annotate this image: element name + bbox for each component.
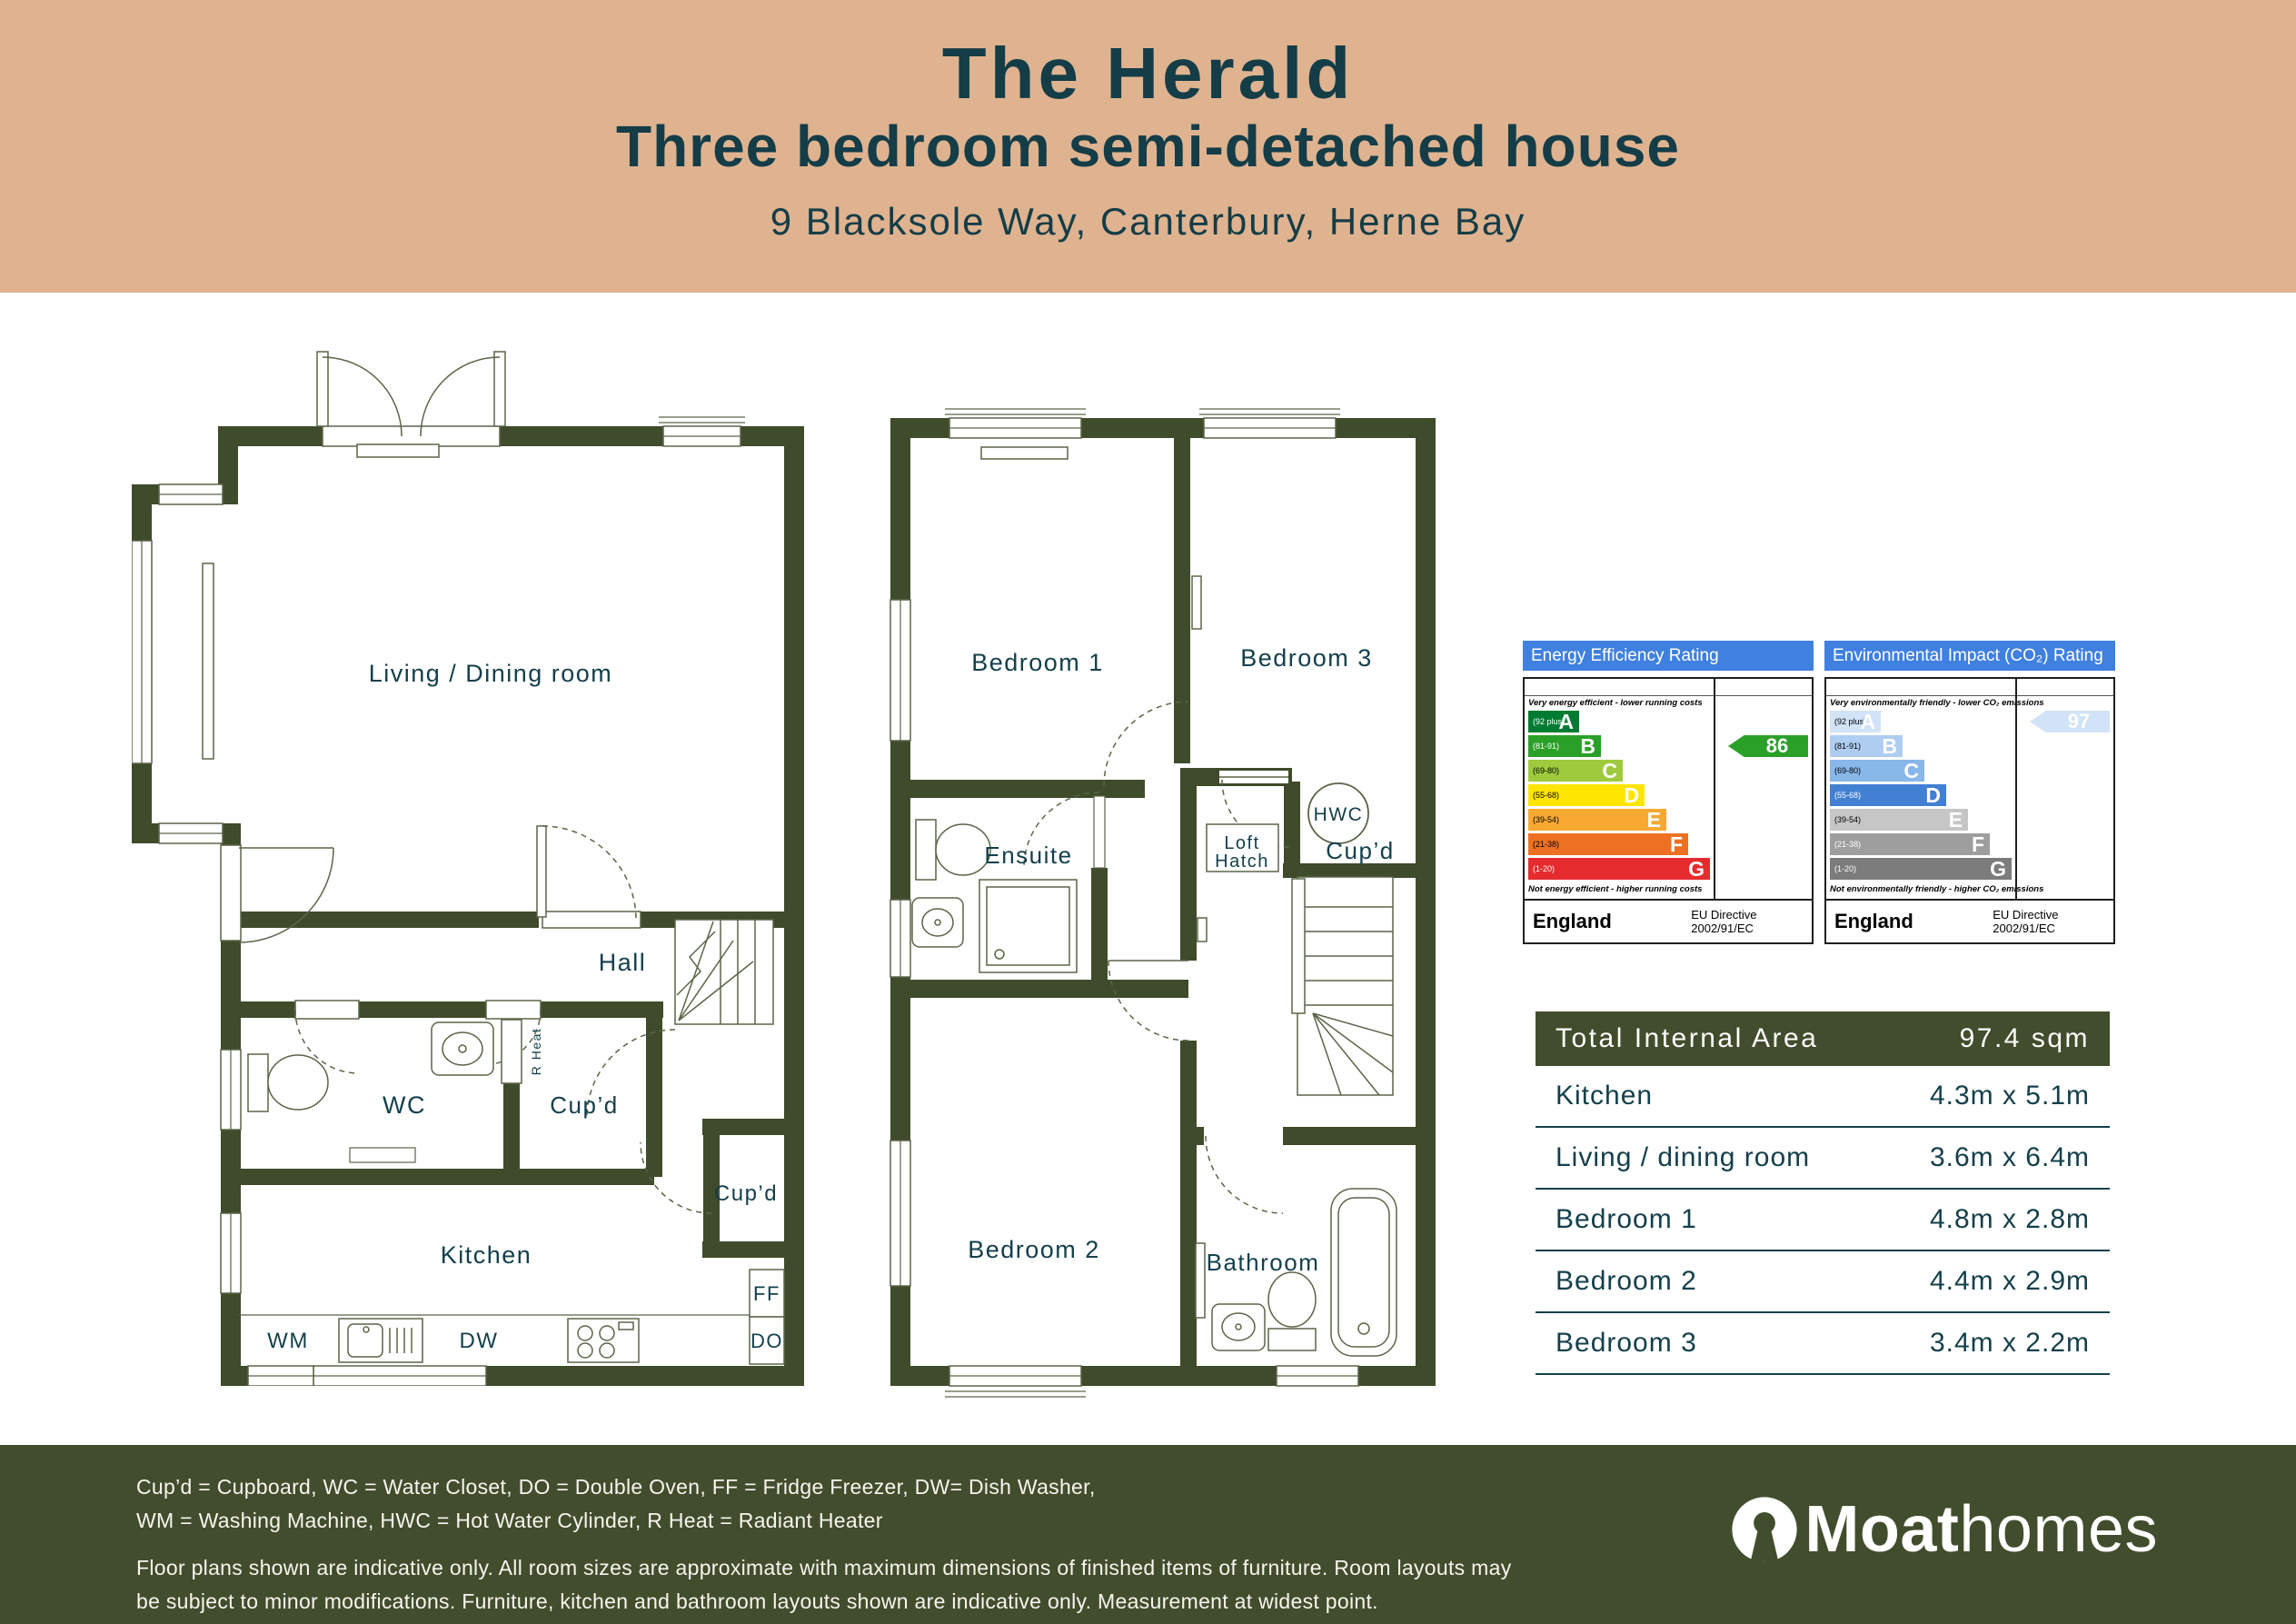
epc-band-letter: G bbox=[1990, 858, 2006, 880]
epc-energy-bands: (92 plus)A(81-91)B86(69-80)C(55-68)D(39-… bbox=[1525, 709, 1812, 882]
epc-environmental-title: Environmental Impact (CO₂) Rating bbox=[1824, 641, 2115, 671]
bath-icon bbox=[1331, 1189, 1396, 1356]
property-address: 9 Blacksole Way, Canterbury, Herne Bay bbox=[0, 200, 2296, 244]
label-r-heat: R Heat bbox=[529, 1028, 543, 1076]
epc-band-letter: D bbox=[1925, 784, 1941, 806]
wc-sink-icon bbox=[432, 1022, 493, 1075]
table-row: Living / dining room3.6m x 6.4m bbox=[1536, 1128, 2110, 1190]
epc-top-strip bbox=[1525, 679, 1812, 696]
epc-band-row: (21-38)F bbox=[1528, 833, 1812, 858]
epc-band-row: (39-54)E bbox=[1528, 809, 1812, 833]
epc-band-B: (81-91)B bbox=[1830, 735, 1903, 757]
label-do: DO bbox=[750, 1330, 783, 1352]
epc-band-letter: A bbox=[1558, 711, 1574, 732]
room-label-cupboard2: Cup’d bbox=[714, 1181, 778, 1206]
epc-environmental-bands: (92 plus)A97(81-91)B(69-80)C(55-68)D(39-… bbox=[1826, 709, 2113, 882]
epc-band-D: (55-68)D bbox=[1830, 784, 1946, 806]
room-label-ensuite: Ensuite bbox=[984, 842, 1072, 869]
room-size: 3.6m x 6.4m bbox=[1930, 1142, 2090, 1173]
label-loft-line1: Loft bbox=[1224, 833, 1259, 853]
dimensions-table: Total Internal Area 97.4 sqm Kitchen4.3m… bbox=[1536, 1011, 2110, 1375]
epc-note-top: Very energy efficient - lower running co… bbox=[1525, 696, 1812, 709]
epc-country: England bbox=[1834, 910, 1913, 933]
epc-directive-line2: 2002/91/EC bbox=[1993, 922, 2058, 935]
first-floor-plan: Bedroom 1 Bedroom 3 Ensuite HWC Loft Hat… bbox=[872, 400, 1454, 1400]
epc-band-range: (55-68) bbox=[1528, 791, 1559, 800]
epc-band-range: (39-54) bbox=[1528, 815, 1559, 824]
epc-rating-arrow: 97 bbox=[2030, 711, 2110, 732]
epc-band-row: (39-54)E bbox=[1830, 809, 2113, 833]
disclaimer-line2: be subject to minor modifications. Furni… bbox=[136, 1585, 1512, 1619]
room-size: 4.3m x 5.1m bbox=[1930, 1081, 2090, 1111]
ensuite-toilet-icon bbox=[916, 820, 990, 880]
epc-column-divider bbox=[2015, 679, 2017, 899]
epc-band-range: (81-91) bbox=[1830, 742, 1861, 751]
epc-band-row: (1-20)G bbox=[1830, 858, 2113, 882]
epc-band-row: (81-91)B86 bbox=[1528, 735, 1812, 760]
epc-note-bottom: Not environmentally friendly - higher CO… bbox=[1826, 882, 2113, 895]
epc-directive: EU Directive 2002/91/EC bbox=[1691, 908, 1756, 935]
ensuite-sink-icon bbox=[912, 898, 963, 947]
epc-band-row: (69-80)C bbox=[1528, 760, 1812, 784]
epc-rating-arrow: 86 bbox=[1728, 735, 1808, 757]
legend-line1: Cup’d = Cupboard, WC = Water Closet, DO … bbox=[136, 1470, 1512, 1504]
label-wm: WM bbox=[267, 1329, 309, 1353]
epc-band-letter: E bbox=[1949, 809, 1963, 831]
table-row: Bedroom 33.4m x 2.2m bbox=[1536, 1313, 2110, 1375]
epc-energy-footer: England EU Directive 2002/91/EC bbox=[1523, 901, 1814, 944]
epc-band-letter: B bbox=[1882, 735, 1897, 757]
epc-band-row: (21-38)F bbox=[1830, 833, 2113, 858]
epc-band-letter: A bbox=[1860, 711, 1875, 732]
room-label-bedroom1: Bedroom 1 bbox=[971, 649, 1104, 676]
epc-band-range: (21-38) bbox=[1830, 840, 1861, 849]
epc-band-G: (1-20)G bbox=[1528, 858, 1710, 880]
page-title: The Herald bbox=[0, 0, 2296, 113]
epc-band-E: (39-54)E bbox=[1830, 809, 1968, 831]
table-row: Kitchen4.3m x 5.1m bbox=[1536, 1066, 2110, 1128]
epc-band-letter: B bbox=[1580, 735, 1595, 757]
epc-directive-line1: EU Directive bbox=[1691, 908, 1756, 922]
room-label-bedroom3: Bedroom 3 bbox=[1240, 644, 1373, 672]
epc-band-C: (69-80)C bbox=[1830, 760, 1924, 782]
room-name: Bedroom 1 bbox=[1556, 1204, 1697, 1235]
epc-band-range: (39-54) bbox=[1830, 815, 1861, 824]
wc-toilet-icon bbox=[248, 1054, 328, 1111]
epc-band-F: (21-38)F bbox=[1830, 833, 1990, 855]
epc-band-range: (55-68) bbox=[1830, 791, 1861, 800]
epc-country: England bbox=[1533, 910, 1612, 933]
moat-homes-logo: Moathomes bbox=[1730, 1492, 2158, 1567]
epc-band-letter: G bbox=[1688, 858, 1705, 880]
keyhole-icon bbox=[1730, 1495, 1799, 1564]
epc-band-E: (39-54)E bbox=[1528, 809, 1666, 831]
epc-note-bottom: Not energy efficient - higher running co… bbox=[1525, 882, 1812, 895]
dimensions-table-header: Total Internal Area 97.4 sqm bbox=[1536, 1011, 2110, 1066]
epc-band-C: (69-80)C bbox=[1528, 760, 1623, 782]
dimensions-table-rows: Kitchen4.3m x 5.1mLiving / dining room3.… bbox=[1536, 1066, 2110, 1375]
epc-note-top: Very environmentally friendly - lower CO… bbox=[1826, 696, 2113, 709]
label-dw: DW bbox=[460, 1329, 499, 1353]
shower-icon bbox=[979, 880, 1077, 972]
epc-energy-body: Very energy efficient - lower running co… bbox=[1523, 677, 1814, 901]
footer-bar: Cup’d = Cupboard, WC = Water Closet, DO … bbox=[0, 1445, 2296, 1624]
room-size: 3.4m x 2.2m bbox=[1930, 1328, 2090, 1359]
epc-band-letter: C bbox=[1903, 760, 1919, 782]
disclaimer-line1: Floor plans shown are indicative only. A… bbox=[136, 1551, 1512, 1585]
room-size: 4.8m x 2.8m bbox=[1930, 1204, 2090, 1235]
staircase-ground bbox=[675, 920, 773, 1024]
room-label-cupboard-first: Cup’d bbox=[1326, 837, 1394, 864]
legend-line2: WM = Washing Machine, HWC = Hot Water Cy… bbox=[136, 1504, 1512, 1538]
room-label-kitchen: Kitchen bbox=[441, 1241, 532, 1269]
epc-energy-title: Energy Efficiency Rating bbox=[1523, 641, 1814, 671]
epc-band-letter: E bbox=[1647, 809, 1661, 831]
epc-top-strip bbox=[1826, 679, 2113, 696]
epc-band-row: (55-68)D bbox=[1528, 784, 1812, 809]
room-label-wc: WC bbox=[383, 1091, 426, 1119]
epc-directive-line1: EU Directive bbox=[1993, 908, 2058, 922]
label-hwc: HWC bbox=[1314, 804, 1364, 825]
room-name: Bedroom 3 bbox=[1556, 1328, 1697, 1359]
page-subtitle: Three bedroom semi-detached house bbox=[0, 113, 2296, 180]
epc-band-row: (81-91)B bbox=[1830, 735, 2113, 760]
room-label-hall: Hall bbox=[599, 949, 647, 976]
room-size: 4.4m x 2.9m bbox=[1930, 1266, 2090, 1297]
wc-vent bbox=[350, 1148, 415, 1162]
epc-band-row: (1-20)G bbox=[1528, 858, 1812, 882]
total-area-value: 97.4 sqm bbox=[1960, 1023, 2090, 1054]
total-area-label: Total Internal Area bbox=[1556, 1023, 1818, 1054]
epc-band-range: (1-20) bbox=[1830, 864, 1856, 873]
epc-band-letter: D bbox=[1624, 784, 1639, 806]
brand-wordmark: Moathomes bbox=[1804, 1492, 2158, 1567]
energy-efficiency-chart: Energy Efficiency Rating Very energy eff… bbox=[1523, 641, 1814, 944]
ground-windows bbox=[132, 352, 740, 1386]
brochure-page: The Herald Three bedroom semi-detached h… bbox=[0, 0, 2296, 1624]
room-label-bathroom: Bathroom bbox=[1207, 1249, 1320, 1276]
brand-light: homes bbox=[1959, 1493, 2158, 1566]
bathroom-toilet-icon bbox=[1268, 1272, 1316, 1350]
staircase-first bbox=[1292, 877, 1393, 1095]
brand-bold: Moat bbox=[1804, 1493, 1959, 1566]
epc-band-range: (69-80) bbox=[1528, 766, 1559, 775]
epc-column-divider bbox=[1714, 679, 1715, 899]
room-name: Bedroom 2 bbox=[1556, 1266, 1697, 1297]
label-loft-line2: Hatch bbox=[1215, 852, 1269, 872]
epc-band-letter: C bbox=[1602, 760, 1617, 782]
epc-band-row: (92 plus)A97 bbox=[1830, 711, 2113, 735]
epc-band-letter: F bbox=[1972, 833, 1984, 855]
table-row: Bedroom 14.8m x 2.8m bbox=[1536, 1190, 2110, 1251]
room-label-bedroom2: Bedroom 2 bbox=[968, 1236, 1100, 1263]
table-row: Bedroom 24.4m x 2.9m bbox=[1536, 1251, 2110, 1313]
epc-band-B: (81-91)B bbox=[1528, 735, 1601, 757]
kitchen-sink-icon bbox=[339, 1319, 422, 1362]
epc-directive: EU Directive 2002/91/EC bbox=[1993, 908, 2058, 935]
epc-band-D: (55-68)D bbox=[1528, 784, 1645, 806]
hob-icon bbox=[568, 1319, 639, 1362]
epc-band-range: (81-91) bbox=[1528, 742, 1559, 751]
epc-environmental-body: Very environmentally friendly - lower CO… bbox=[1824, 677, 2115, 901]
epc-band-F: (21-38)F bbox=[1528, 833, 1688, 855]
epc-band-letter: F bbox=[1670, 833, 1683, 855]
epc-band-G: (1-20)G bbox=[1830, 858, 2012, 880]
environmental-impact-chart: Environmental Impact (CO₂) Rating Very e… bbox=[1824, 641, 2115, 944]
footer-text: Cup’d = Cupboard, WC = Water Closet, DO … bbox=[136, 1470, 1512, 1619]
epc-directive-line2: 2002/91/EC bbox=[1691, 922, 1756, 935]
epc-band-range: (69-80) bbox=[1830, 766, 1861, 775]
label-ff: FF bbox=[753, 1282, 780, 1305]
epc-band-row: (69-80)C bbox=[1830, 760, 2113, 784]
room-label-cupboard1: Cup’d bbox=[550, 1091, 618, 1119]
epc-band-row: (55-68)D bbox=[1830, 784, 2113, 809]
room-name: Living / dining room bbox=[1556, 1142, 1810, 1173]
epc-environmental-footer: England EU Directive 2002/91/EC bbox=[1824, 901, 2115, 944]
header-banner: The Herald Three bedroom semi-detached h… bbox=[0, 0, 2296, 293]
epc-band-range: (1-20) bbox=[1528, 864, 1555, 873]
epc-band-A: (92 plus)A bbox=[1528, 711, 1579, 732]
room-label-living: Living / Dining room bbox=[369, 660, 613, 687]
bathroom-sink-icon bbox=[1212, 1304, 1265, 1350]
ground-floor-plan: Living / Dining room Hall WC Cup’d Cup’d… bbox=[132, 350, 822, 1386]
epc-band-A: (92 plus)A bbox=[1830, 711, 1881, 732]
epc-band-row: (92 plus)A bbox=[1528, 711, 1812, 735]
room-name: Kitchen bbox=[1556, 1081, 1653, 1111]
epc-band-range: (21-38) bbox=[1528, 840, 1559, 849]
